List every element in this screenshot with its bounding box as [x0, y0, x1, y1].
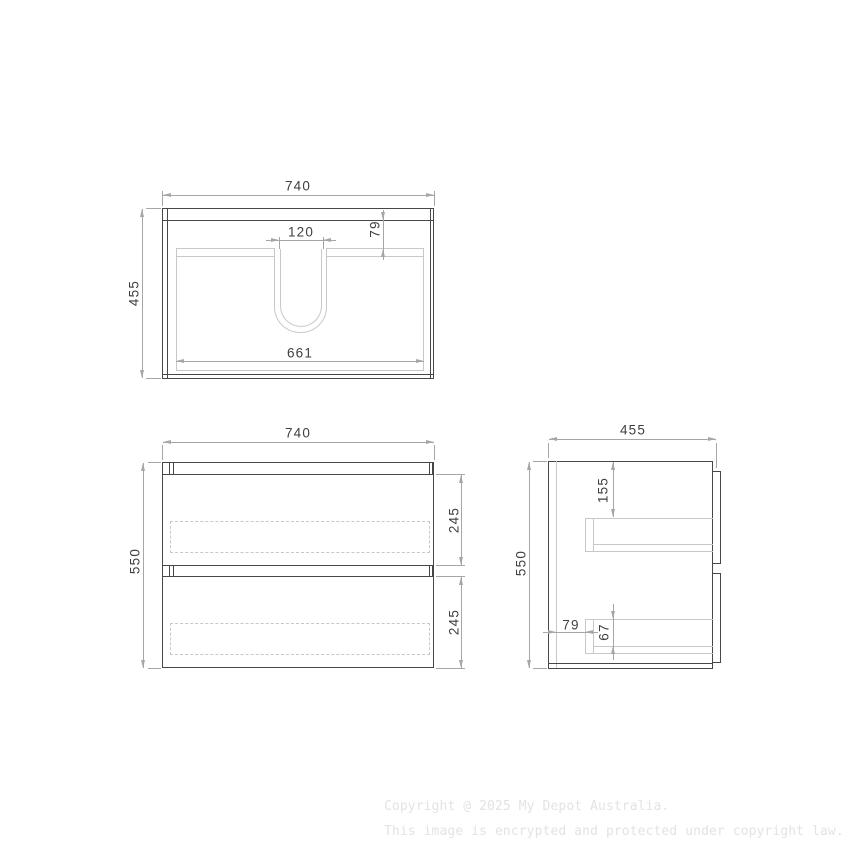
dim-ext-line	[148, 462, 161, 463]
front-view-width-label: 740	[285, 426, 311, 440]
dim-ext-line	[148, 668, 161, 669]
carcass-edge-tick	[429, 565, 430, 576]
dim-ext-line	[436, 668, 465, 669]
top-to-drawer-label: 155	[596, 477, 610, 503]
dim-arrow-icon	[381, 212, 385, 220]
watermark-line-2: This image is encrypted and protected un…	[384, 824, 844, 840]
dim-arrow-icon	[527, 462, 531, 470]
dim-ext-line	[716, 443, 717, 468]
dim-ext-line	[434, 445, 435, 460]
dim-arrow-icon	[323, 238, 331, 242]
carcass-edge-tick	[432, 462, 433, 474]
carcass-edge-tick	[173, 565, 174, 576]
dim-arrow-icon	[163, 440, 171, 444]
dim-line	[163, 442, 434, 443]
top-view-height-label: 455	[127, 280, 141, 306]
dim-line	[176, 361, 424, 362]
top-view-counter-edge-left-1	[176, 248, 275, 249]
top-view-front-rail-line	[162, 374, 434, 375]
top-view-counter-edge-right-2	[326, 256, 424, 257]
dim-arrow-icon	[585, 630, 593, 634]
dim-arrow-icon	[140, 209, 144, 217]
dim-arrow-icon	[708, 437, 716, 441]
drawer-front-profile-bottom	[712, 573, 721, 663]
basin-width-label: 120	[288, 225, 314, 239]
side-view-left-wall-inner-line	[556, 461, 557, 668]
dim-ext-line	[434, 191, 435, 206]
front-view-mid-gap-bottom-line	[162, 576, 434, 577]
dim-arrow-icon	[459, 557, 463, 565]
dim-arrow-icon	[459, 660, 463, 668]
dim-arrow-icon	[459, 475, 463, 483]
side-view-depth-label: 455	[620, 423, 646, 437]
dim-arrow-icon	[611, 509, 615, 517]
top-view-left-wall-inner-line	[167, 208, 168, 379]
dim-arrow-icon	[426, 193, 434, 197]
drawer-box-hidden-outline-top	[170, 521, 430, 553]
dim-arrow-icon	[611, 646, 615, 654]
dim-line	[142, 209, 143, 378]
dim-arrow-icon	[459, 577, 463, 585]
dim-line	[163, 195, 434, 196]
dim-ext-line	[533, 668, 547, 669]
drawer-inner-height-label: 67	[597, 623, 611, 640]
dim-ext-line	[146, 208, 161, 209]
side-view-height-label: 550	[514, 550, 528, 576]
top-view-counter-edge-left-2	[176, 256, 275, 257]
side-view-bottom-inner-line	[548, 663, 713, 664]
dim-arrow-icon	[527, 660, 531, 668]
dim-line	[529, 462, 530, 668]
dim-ext-line	[436, 565, 465, 566]
watermark-line-1: Copyright @ 2025 My Depot Australia.	[384, 799, 669, 815]
wall-to-drawer-label: 79	[562, 618, 579, 632]
carcass-edge-tick	[432, 565, 433, 576]
top-view-width-label: 740	[285, 179, 311, 193]
dim-arrow-icon	[141, 463, 145, 471]
dim-line	[549, 439, 716, 440]
drawer-box-bottom-inner-line	[593, 544, 713, 545]
drawer-bottom-height-label: 245	[447, 609, 461, 635]
dim-arrow-icon	[271, 238, 279, 242]
dim-arrow-icon	[141, 660, 145, 668]
dim-arrow-icon	[611, 611, 615, 619]
top-view-back-rail-line	[162, 220, 434, 221]
drawer-box-hidden-outline-bottom	[170, 623, 430, 655]
dim-arrow-icon	[426, 440, 434, 444]
drawer-front-profile-top	[712, 471, 721, 564]
dim-ext-line	[162, 445, 163, 460]
top-view-inner-left-line	[176, 248, 177, 370]
top-view-inner-right-line	[423, 248, 424, 370]
dim-arrow-icon	[611, 462, 615, 470]
front-view-height-label: 550	[128, 548, 142, 574]
dim-ext-line	[533, 461, 547, 462]
front-view-mid-gap-top-line	[162, 565, 434, 566]
basin-cutout-inner	[280, 249, 322, 327]
top-view-inner-bottom-line	[176, 370, 424, 371]
dim-arrow-icon	[381, 249, 385, 257]
drawer-box-profile-top	[585, 518, 713, 552]
front-view-top-rail-line	[162, 474, 434, 475]
dim-arrow-icon	[548, 630, 556, 634]
dim-ext-line	[548, 443, 549, 458]
basin-depth-label: 79	[368, 220, 382, 237]
carcass-edge-tick	[169, 565, 170, 576]
top-view-right-wall-inner-line	[430, 208, 431, 379]
dim-arrow-icon	[416, 359, 424, 363]
top-view-inner-width-label: 661	[287, 346, 313, 360]
top-view-counter-edge-right-1	[326, 248, 424, 249]
drawer-box-wall-line	[593, 518, 594, 552]
drawer-box-wall-line	[593, 619, 594, 654]
drawing-canvas: 740 455 120 79 661	[0, 0, 850, 850]
dim-arrow-icon	[163, 193, 171, 197]
dim-arrow-icon	[549, 437, 557, 441]
dim-line	[143, 463, 144, 668]
drawer-top-height-label: 245	[447, 507, 461, 533]
carcass-edge-tick	[429, 462, 430, 474]
dim-ext-line	[146, 378, 161, 379]
carcass-edge-tick	[169, 462, 170, 474]
dim-ext-line	[279, 237, 280, 249]
dim-arrow-icon	[176, 359, 184, 363]
carcass-edge-tick	[173, 462, 174, 474]
dim-arrow-icon	[140, 370, 144, 378]
